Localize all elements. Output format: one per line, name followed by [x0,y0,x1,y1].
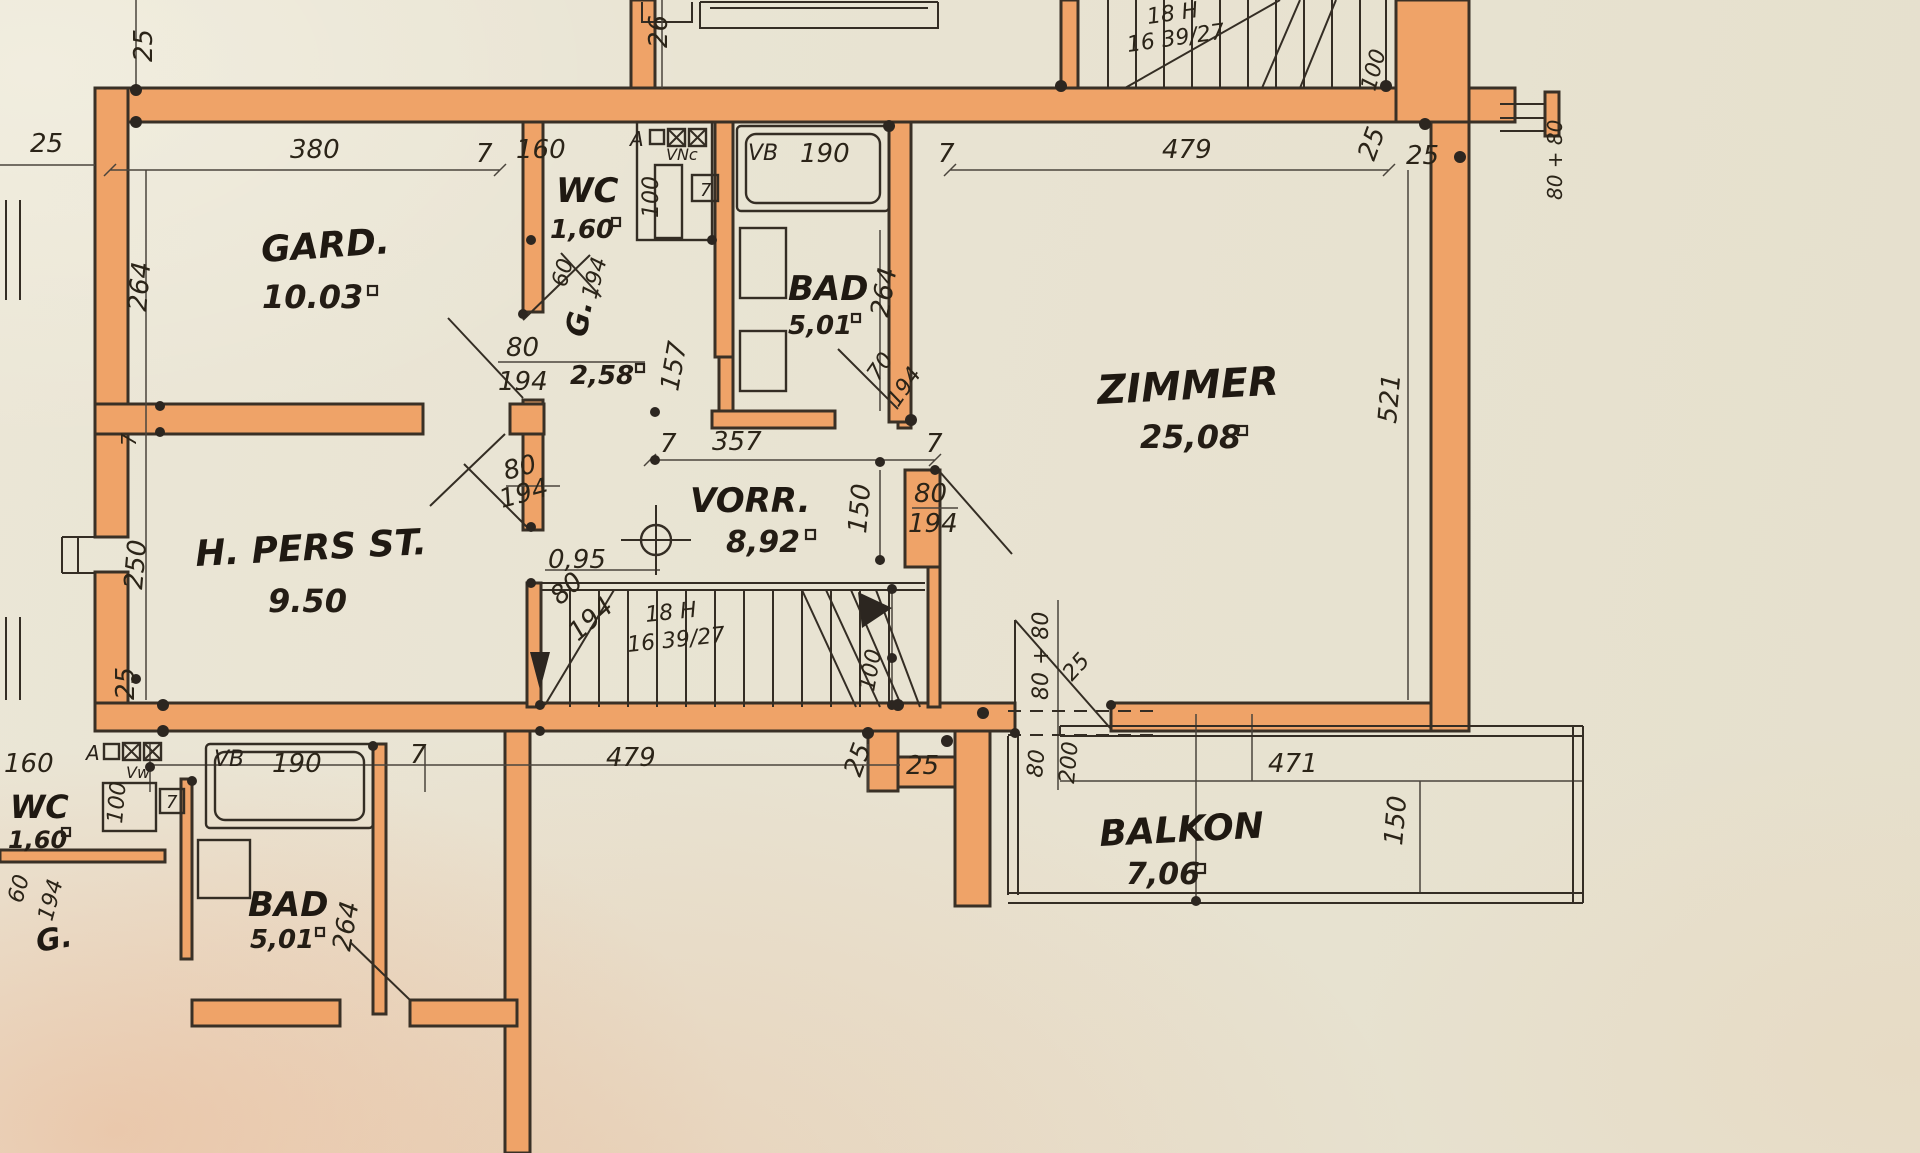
window-left [62,537,95,573]
m2-symbol-bad-lower [316,928,324,936]
floorplan-scan: 25 26 18 H 16 39/27 100 80 + 80 25 380 7… [0,0,1920,1153]
wall-stair-stub [527,583,541,707]
vent-label-upper: VNc [666,145,698,164]
tub-label-upper: VB [748,141,778,166]
wall-gard-hpers [95,404,423,434]
stairs-main-line2: 16 39/27 [626,623,726,658]
dim-bot-7b: 7 [166,792,178,813]
dim-z-521: 521 [1373,373,1407,425]
tub-dim-upper: 190 [800,139,850,169]
label-room-zimmer: ZIMMER [1094,359,1280,415]
flue-symbols-upper [650,129,706,146]
wall-balcony-left [955,731,990,906]
dim-row-25a: 25 [1352,123,1392,164]
floorplan-drawing: 25 26 18 H 16 39/27 100 80 + 80 25 380 7… [0,0,1920,1153]
dim-z-150: 150 [843,483,877,535]
labels: 25 26 18 H 16 39/27 100 80 + 80 25 380 7… [4,0,1567,960]
dim-bot-194: 194 [34,877,69,924]
label-room-hpers: H. PERS ST. [194,522,427,575]
label-room-wc-lower: WC [10,788,69,826]
dim-left-25: 25 [111,667,141,700]
area-hpers: 9.50 [268,582,347,620]
dim-g-door-194: 194 [498,367,548,397]
dim-bot-264: 264 [327,899,365,953]
wall-party-left [95,703,1015,731]
label-room-bad-lower: BAD [248,885,328,925]
dim-z-door-194: 194 [908,509,958,539]
wall-lower-wc-bad [181,779,192,959]
wall-left-mid [95,434,128,537]
dim-bot-60: 60 [4,872,35,906]
dim-hall-7a: 7 [660,429,677,459]
tub-dim-lower: 190 [272,749,322,779]
area-zimmer: 25,08 [1140,418,1241,456]
washbasin-lower [198,840,250,898]
neighbor-edge-lines [6,200,20,700]
dim-row-7a: 7 [476,139,493,169]
dim-right-window: 80 + 80 [1543,120,1567,200]
label-room-vorr: VORR. [690,481,811,521]
wall-g-right [719,357,733,411]
label-room-g-upper: G. [559,298,600,340]
label-room-wc-upper: WC [556,171,619,211]
m2-symbol-vorr [806,530,815,539]
dim-bot-7a: 7 [410,740,427,770]
dim-balc-471: 471 [1268,749,1318,779]
area-bad-upper: 5,01 [788,311,852,341]
dim-wc-60: 60 [548,256,579,290]
dim-row-160: 160 [516,135,566,165]
m2-symbol-gard [368,286,377,295]
vent-label-lower: Vw [126,763,151,782]
wall-lower-bottom-a [192,1000,340,1026]
dim-balc-150: 150 [1379,795,1413,847]
washbasin-upper [740,228,786,298]
dim-bot-160: 160 [4,749,54,779]
label-room-bad-upper: BAD [788,269,868,309]
area-wc-lower: 1,60 [8,826,67,854]
dim-top-left-25: 25 [129,29,159,62]
dim-g-157: 157 [655,339,693,394]
label-room-gard: GARD. [260,221,391,271]
wall-lower-center [505,731,530,1153]
dim-balc-25: 25 [1058,648,1095,686]
dim-z-door-80: 80 [914,479,947,509]
area-gard: 10.03 [262,278,363,316]
appliance-upper [740,331,786,391]
m2-symbol-bad-upper [852,314,860,322]
walls [0,0,1559,1153]
flue-mark-upper: A [628,127,644,151]
label-room-balkon: BALKON [1098,805,1264,855]
area-wc-upper: 1,60 [550,215,614,245]
shaft-dim-upper: 100 [639,176,664,218]
dim-hall-width: 0,95 [548,545,606,575]
stairs-top-line2: 16 39/27 [1125,19,1226,57]
dim-row-7b: 7 [938,139,955,169]
dim-balc-80-80: 80 + 80 [1029,612,1054,700]
stairs-main-line1: 18 H [644,598,698,628]
dim-bot-25b: 25 [906,751,939,781]
dim-left-7: 7 [117,433,141,446]
dim-bot-479: 479 [606,743,656,773]
area-vorr: 8,92 [726,525,800,560]
wall-top [95,88,1500,122]
wall-bad-hall-left [712,411,835,428]
fixtures-above-wall [642,2,938,28]
wall-right-top [1396,0,1469,122]
dim-left-264: 264 [123,261,157,313]
dim-row-25: 25 [30,129,63,159]
light-symbol [621,505,691,575]
dim-row-479: 479 [1162,135,1212,165]
flue-symbols-lower [104,743,161,760]
wall-lower-bottom-b [410,1000,517,1026]
door-hpers [430,434,505,506]
wall-above-mid [1061,0,1078,88]
dim-wc-7: 7 [700,180,712,201]
wall-bad-left [715,122,733,357]
dim-top-26: 26 [644,15,674,48]
dim-balc-80: 80 [1023,748,1050,778]
area-bad-lower: 5,01 [250,925,314,955]
dim-hall-7b: 7 [926,429,943,459]
wall-right [1431,122,1469,731]
tub-label-lower: VB [214,747,244,772]
dim-left-250: 250 [119,539,153,591]
wall-gard-hpers-stub [510,404,544,434]
stair-arrow-dir [858,592,892,628]
shaft-dim-lower: 100 [103,781,132,825]
m2-symbol-g-upper [636,364,644,372]
dim-row-25b: 25 [1406,141,1439,171]
wall-lower-bad-right [373,744,386,1014]
flue-mark-lower: A [84,741,100,765]
area-balkon: 7,06 [1126,857,1200,892]
dim-balc-200: 200 [1055,741,1084,785]
dim-row-380: 380 [290,135,340,165]
wall-left-upper [95,88,128,408]
area-g-upper: 2,58 [570,361,634,391]
label-room-g-lower: G. [33,919,75,960]
dim-hall-357: 357 [712,427,762,457]
dim-g-door-80: 80 [506,333,539,363]
wall-stair-right [928,567,940,707]
